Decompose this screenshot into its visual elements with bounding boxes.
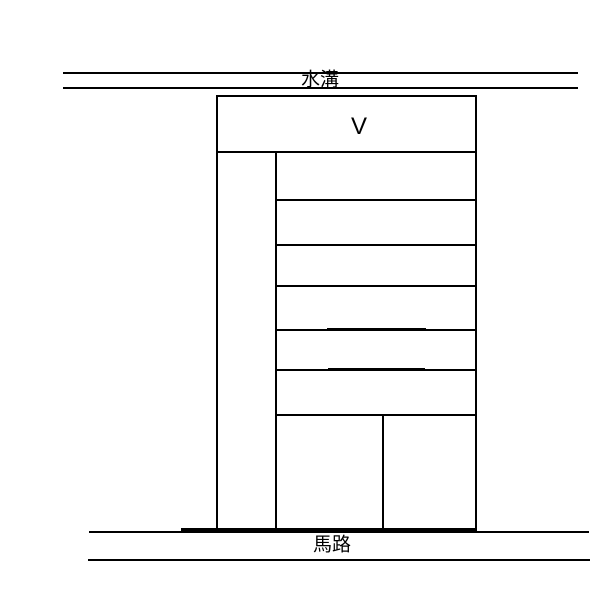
floor-line-3 [276,285,477,287]
inner-vertical-wall [275,151,277,530]
unit-section-bottom [216,151,477,153]
ditch-label: 水溝 [301,71,339,90]
building-left-wall [216,95,218,530]
floor-line-6 [276,414,477,416]
road-line-top [89,531,589,533]
unit-label: V [351,115,367,139]
site-sketch-diagram: 水溝 V 馬路 [0,0,600,600]
building-top-edge [216,95,477,97]
building-right-wall [475,95,477,530]
road-line-bottom [88,559,590,561]
road-label: 馬路 [313,536,351,555]
ground-floor-partition [382,414,384,530]
floor-line-1 [276,199,477,201]
floor-line-4-thick-seg [327,328,426,331]
floor-line-5-thick-seg [328,368,425,371]
floor-line-2 [276,244,477,246]
